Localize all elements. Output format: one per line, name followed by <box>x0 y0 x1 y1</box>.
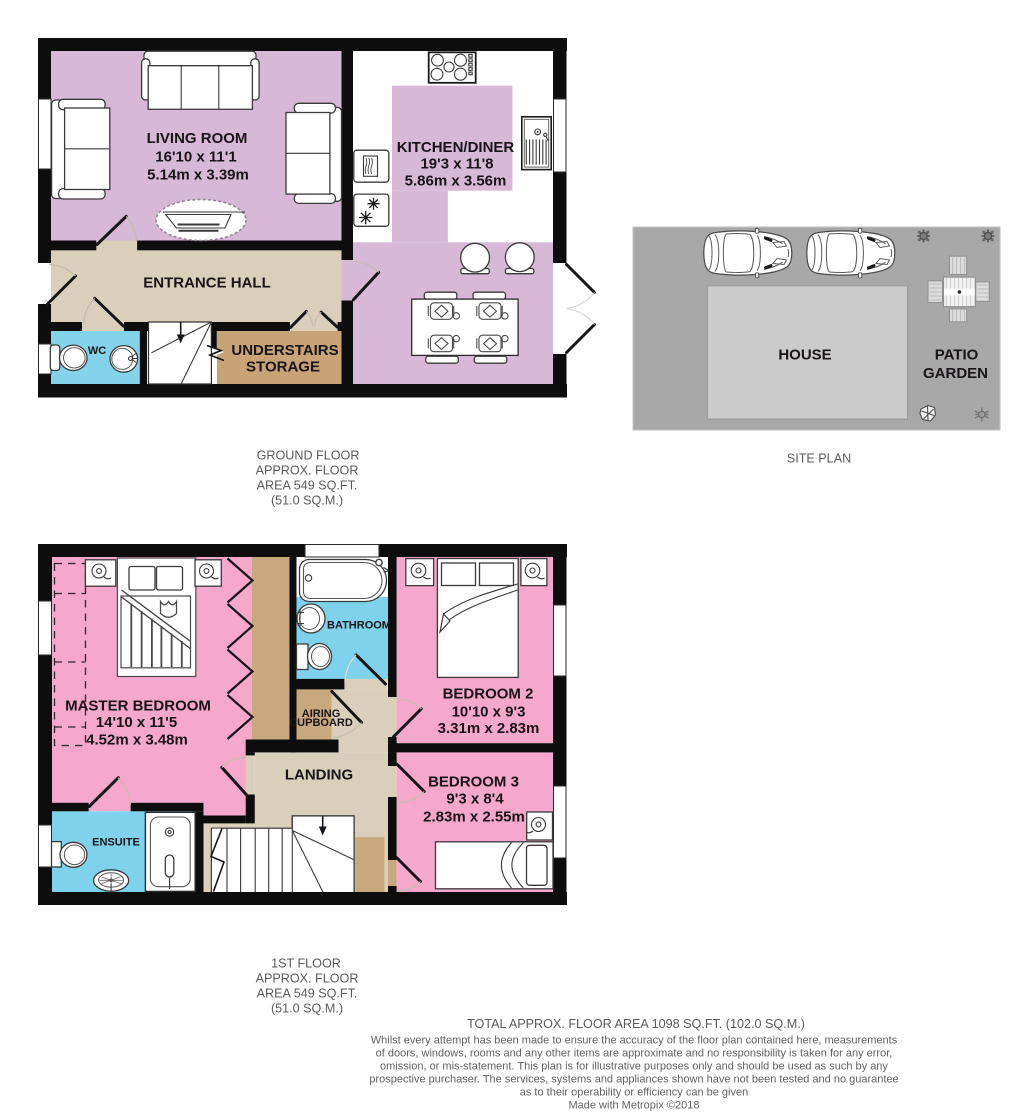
svg-text:prospective purchaser. The ser: prospective purchaser. The services, sys… <box>369 1074 898 1086</box>
svg-text:of doors, windows, rooms and a: of doors, windows, rooms and any other i… <box>376 1048 893 1060</box>
svg-text:CUPBOARD: CUPBOARD <box>289 717 353 729</box>
svg-text:HOUSE: HOUSE <box>778 347 831 364</box>
svg-text:Made with Metropix ©2018: Made with Metropix ©2018 <box>568 1100 699 1112</box>
svg-text:19'3 x 11'8: 19'3 x 11'8 <box>420 156 493 173</box>
svg-text:(51.0 SQ.M.): (51.0 SQ.M.) <box>271 494 343 508</box>
svg-text:UNDERSTAIRS: UNDERSTAIRS <box>231 342 338 359</box>
svg-text:KITCHEN/DINER: KITCHEN/DINER <box>397 139 515 156</box>
svg-text:ENSUITE: ENSUITE <box>92 837 140 849</box>
svg-text:WC: WC <box>88 345 106 357</box>
svg-text:BATHROOM: BATHROOM <box>327 620 391 632</box>
svg-text:10'10 x 9'3: 10'10 x 9'3 <box>452 704 526 721</box>
svg-text:(51.0 SQ.M.): (51.0 SQ.M.) <box>271 1002 343 1016</box>
svg-text:16'10 x 11'1: 16'10 x 11'1 <box>155 149 236 166</box>
svg-text:5.86m x 3.56m: 5.86m x 3.56m <box>405 173 507 190</box>
svg-text:2.83m x 2.55m: 2.83m x 2.55m <box>423 809 525 826</box>
svg-text:LIVING ROOM: LIVING ROOM <box>147 130 248 147</box>
svg-text:SITE PLAN: SITE PLAN <box>787 452 851 466</box>
svg-text:1ST FLOOR: 1ST FLOOR <box>271 957 341 971</box>
svg-text:ENTRANCE HALL: ENTRANCE HALL <box>143 275 271 292</box>
svg-text:PATIO: PATIO <box>935 347 979 364</box>
svg-text:BEDROOM 2: BEDROOM 2 <box>443 686 534 703</box>
svg-text:AREA 549 SQ.FT.: AREA 549 SQ.FT. <box>257 479 358 493</box>
svg-text:APPROX. FLOOR: APPROX. FLOOR <box>256 972 359 986</box>
svg-text:14'10 x 11'5: 14'10 x 11'5 <box>96 714 177 731</box>
svg-text:as to their operability or eff: as to their operability or efficiency ca… <box>520 1087 748 1099</box>
svg-text:3.31m x 2.83m: 3.31m x 2.83m <box>438 720 540 737</box>
svg-text:MASTER BEDROOM: MASTER BEDROOM <box>65 698 211 715</box>
svg-text:AREA 549 SQ.FT.: AREA 549 SQ.FT. <box>257 987 358 1001</box>
svg-text:TOTAL APPROX. FLOOR AREA 1098: TOTAL APPROX. FLOOR AREA 1098 SQ.FT. (10… <box>467 1017 805 1031</box>
svg-text:GARDEN: GARDEN <box>923 365 988 382</box>
svg-text:GROUND FLOOR: GROUND FLOOR <box>257 449 360 463</box>
svg-text:STORAGE: STORAGE <box>246 359 320 376</box>
svg-text:LANDING: LANDING <box>285 767 353 784</box>
svg-text:5.14m x 3.39m: 5.14m x 3.39m <box>147 167 249 184</box>
svg-text:BEDROOM 3: BEDROOM 3 <box>428 774 519 791</box>
svg-text:APPROX. FLOOR: APPROX. FLOOR <box>256 464 359 478</box>
svg-text:9'3 x 8'4: 9'3 x 8'4 <box>446 791 504 808</box>
svg-text:4.52m x 3.48m: 4.52m x 3.48m <box>86 732 188 749</box>
svg-text:Whilst every attempt has been: Whilst every attempt has been made to en… <box>371 1035 898 1047</box>
svg-text:omission, or mis-statement. Th: omission, or mis-statement. This plan is… <box>380 1061 888 1073</box>
